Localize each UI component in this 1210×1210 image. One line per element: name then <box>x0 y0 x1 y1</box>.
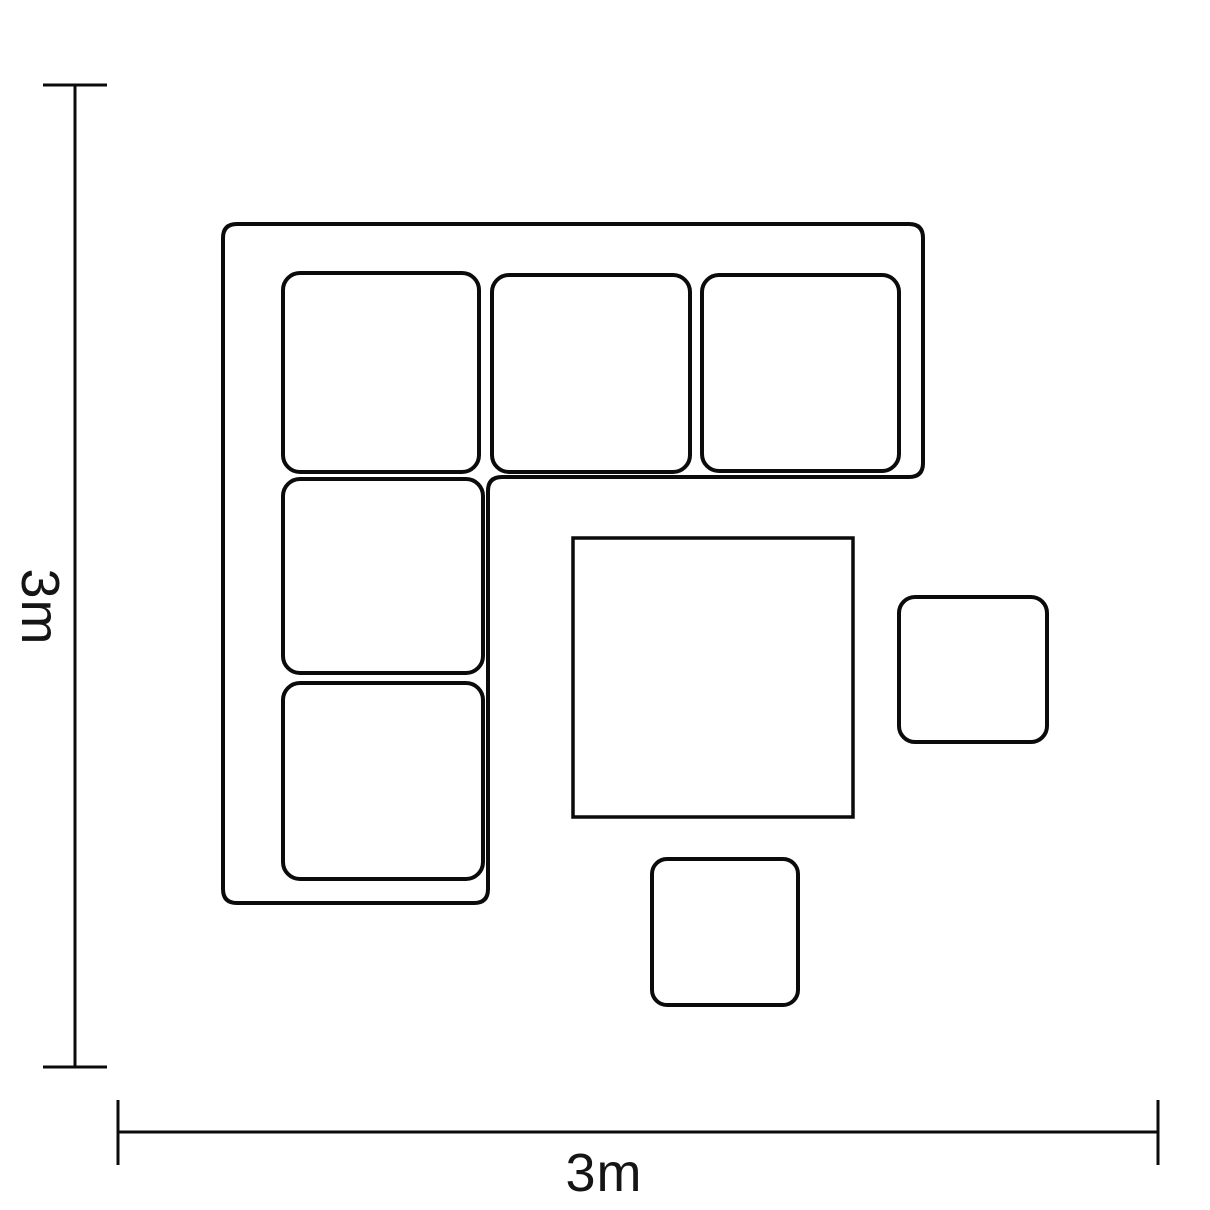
sofa-cushion-top-2 <box>492 275 690 472</box>
diagram-canvas: 3m 3m <box>0 0 1210 1210</box>
height-dimension: 3m <box>10 85 107 1067</box>
table <box>573 538 853 817</box>
sofa-cushion-left-2 <box>283 683 483 879</box>
width-dimension: 3m <box>118 1100 1158 1203</box>
furniture-dimension-diagram: 3m 3m <box>0 0 1210 1210</box>
sofa-cushion-left-1 <box>283 479 483 673</box>
stool-right <box>899 597 1047 742</box>
width-label: 3m <box>565 1143 642 1203</box>
sofa-cushion-top-1 <box>283 273 479 472</box>
sofa-cushion-top-3 <box>702 275 899 471</box>
height-label: 3m <box>10 568 70 645</box>
stool-bottom <box>652 859 798 1005</box>
